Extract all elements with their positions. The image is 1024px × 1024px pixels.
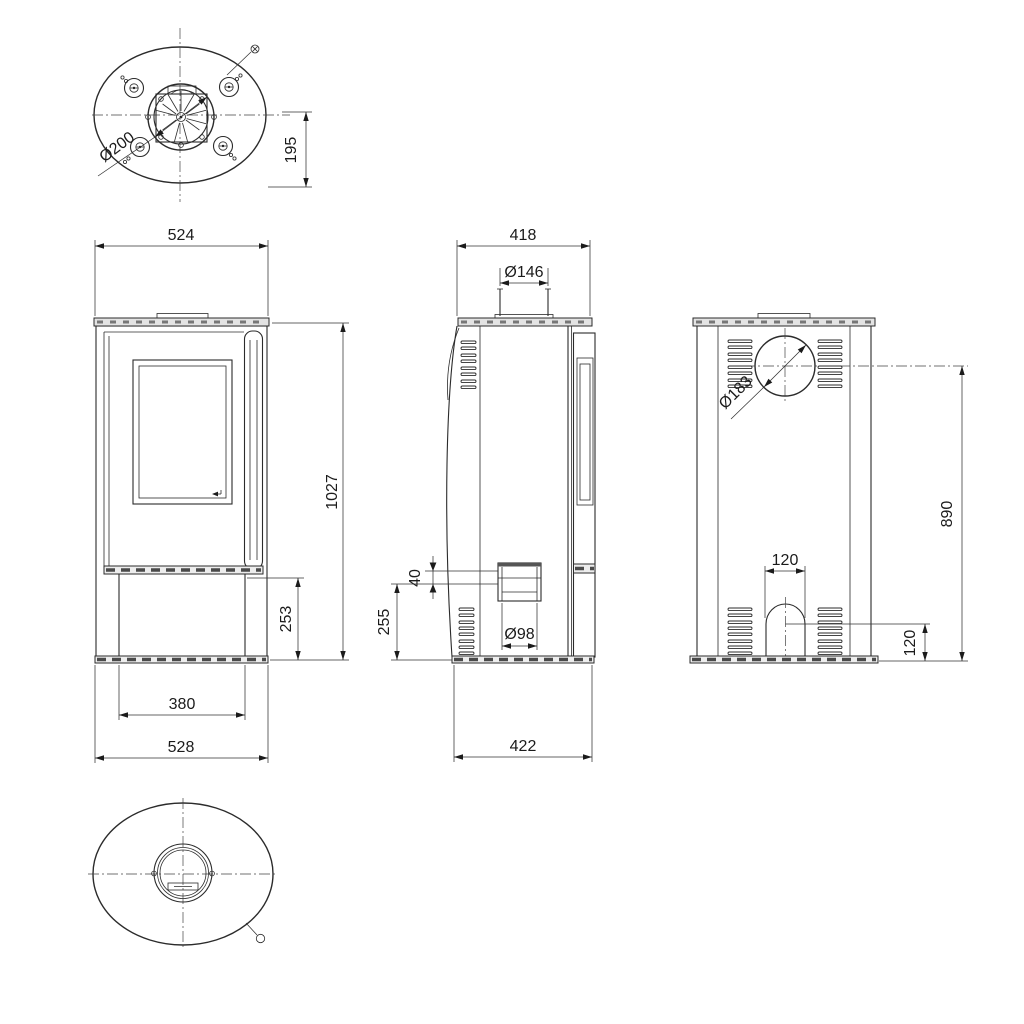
knob-top-left (121, 76, 144, 98)
back-view: Ø183 890 120 (690, 314, 968, 664)
air-inlet-duct (498, 563, 541, 601)
dim-text-146: Ø146 (504, 264, 543, 281)
knob-bottom-right (214, 137, 237, 161)
front-view: 524 1027 253 380 528 (94, 227, 349, 763)
door-column-side (574, 333, 596, 657)
side-rear-vents-bottom (459, 608, 474, 655)
dim-text-380: 380 (169, 696, 196, 713)
door-latch-icon (212, 490, 221, 496)
dim-side-flue-collar: Ø146 (500, 264, 548, 286)
dim-side-inlet-height: 255 (376, 584, 452, 660)
dim-back-flue-height: 890 (879, 366, 968, 661)
dim-side-base-depth: 422 (454, 665, 592, 762)
dim-front-base-width: 528 (95, 665, 268, 763)
dim-front-plinth-height: 253 (247, 578, 304, 660)
bottom-view (88, 798, 278, 950)
dim-side-duct-height: 40 (391, 556, 498, 599)
dim-top-195: 195 (268, 112, 312, 187)
drawing-canvas: Ø200 195 (0, 0, 1024, 1024)
dim-text-418: 418 (510, 227, 537, 244)
dim-text-422: 422 (510, 738, 537, 755)
dim-text-524: 524 (168, 227, 195, 244)
top-view: Ø200 195 (92, 28, 312, 202)
bottom-pin-callout (246, 923, 265, 943)
dim-top-flue-diameter: Ø200 (97, 97, 207, 176)
dim-front-base-inner-width: 380 (119, 665, 245, 720)
front-top-handle (157, 314, 208, 319)
dim-text-flue-diameter: Ø200 (97, 129, 139, 166)
back-top-plate (693, 318, 875, 326)
side-view: 418 Ø146 40 255 Ø98 (376, 227, 595, 762)
dim-side-inlet-diameter: Ø98 (502, 603, 537, 650)
dim-text-890: 890 (939, 501, 956, 528)
front-body-outline (96, 326, 267, 657)
back-top-handle (758, 314, 810, 319)
door-hinge-column (245, 331, 263, 569)
dim-text-40: 40 (407, 569, 424, 587)
dim-text-528: 528 (168, 739, 195, 756)
dim-text-120-width: 120 (772, 552, 799, 569)
dim-text-1027: 1027 (324, 474, 341, 510)
door-glass-outer (133, 360, 232, 504)
dim-text-195: 195 (283, 137, 300, 164)
back-vents-top-right (818, 340, 842, 388)
back-vents-bottom-right (818, 608, 842, 655)
dim-text-255: 255 (376, 609, 393, 636)
dim-text-98: Ø98 (504, 626, 534, 643)
dim-text-253: 253 (278, 606, 295, 633)
knob-top-right (220, 74, 243, 97)
side-rear-vents-top (461, 341, 476, 389)
back-vents-bottom-left (728, 608, 752, 655)
dim-text-120-height: 120 (902, 630, 919, 657)
dim-front-top-width: 524 (95, 227, 268, 316)
dim-back-arch-width: 120 (765, 552, 805, 618)
dim-back-arch-height: 120 (902, 624, 925, 661)
door-glass-inner (139, 366, 226, 498)
technical-drawing-page: Ø200 195 (0, 0, 1024, 1024)
flue-collar-side (495, 289, 553, 318)
